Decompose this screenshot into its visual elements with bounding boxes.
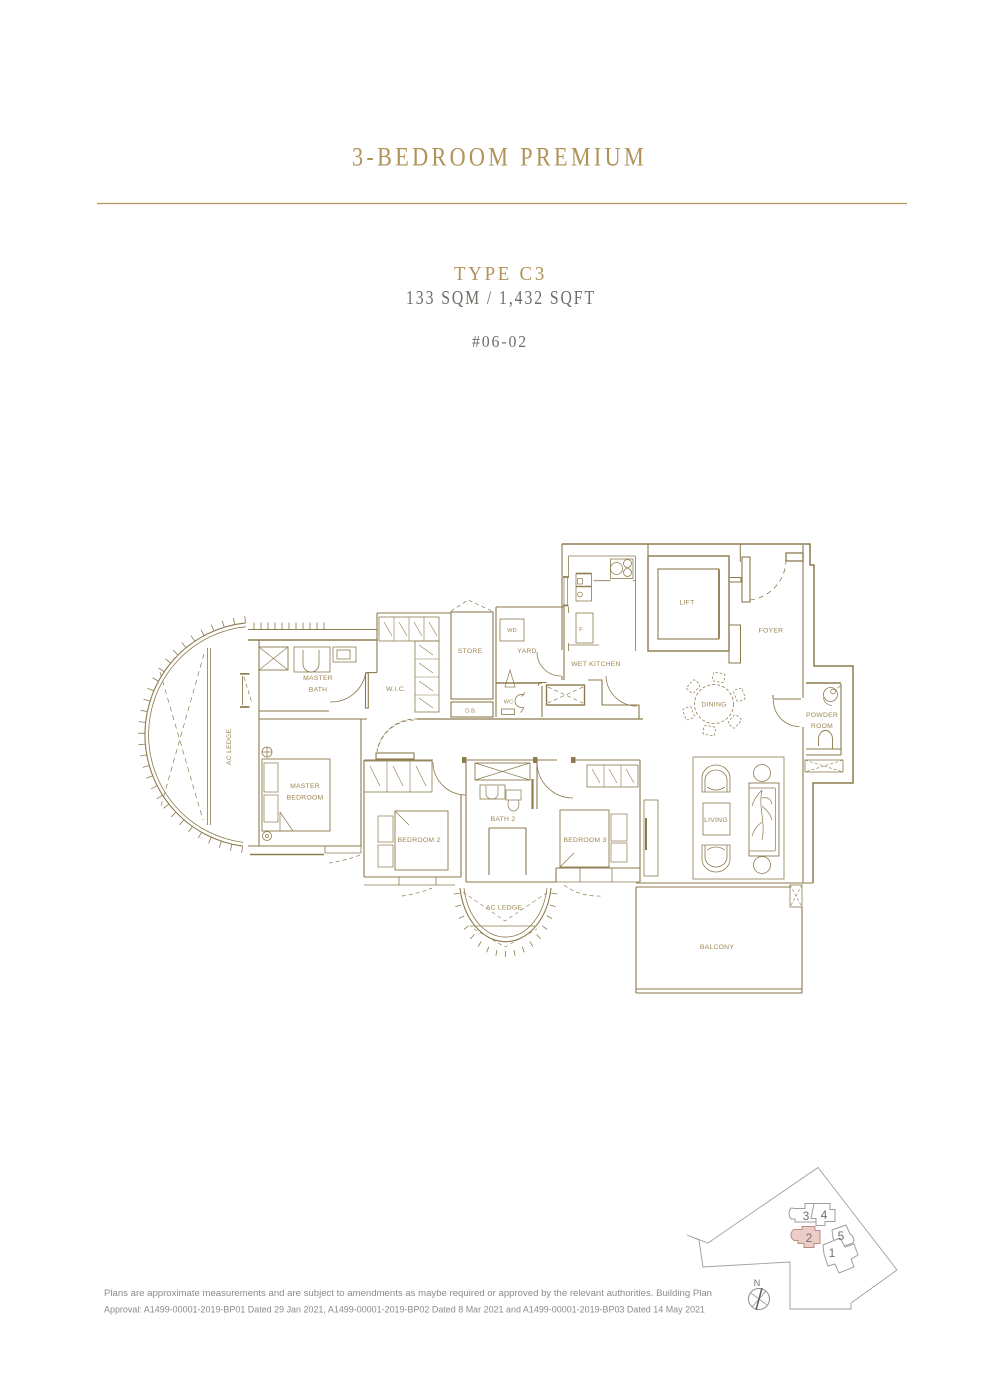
- svg-text:POWDER: POWDER: [806, 712, 838, 719]
- svg-text:5: 5: [838, 1229, 845, 1243]
- svg-text:WD: WD: [507, 628, 517, 634]
- svg-text:BEDROOM: BEDROOM: [287, 795, 324, 802]
- svg-text:Approval: A1499-00001-2019-BP0: Approval: A1499-00001-2019-BP01 Dated 29…: [104, 1305, 705, 1316]
- svg-text:2: 2: [806, 1231, 813, 1245]
- svg-text:MASTER: MASTER: [303, 675, 333, 682]
- svg-text:Plans are approximate measurem: Plans are approximate measurements and a…: [104, 1288, 712, 1299]
- svg-text:W.I.C.: W.I.C.: [386, 686, 406, 693]
- svg-text:STORE: STORE: [458, 648, 483, 655]
- svg-text:BEDROOM 3: BEDROOM 3: [563, 837, 606, 844]
- svg-text:N: N: [754, 1278, 761, 1288]
- svg-text:LIFT: LIFT: [680, 600, 695, 607]
- svg-text:133 SQM / 1,432 SQFT: 133 SQM / 1,432 SQFT: [406, 287, 596, 309]
- svg-text:AC LEDGE: AC LEDGE: [226, 728, 233, 765]
- svg-text:4: 4: [821, 1208, 828, 1222]
- svg-text:ROOM: ROOM: [811, 723, 833, 730]
- svg-text:AC LEDGE: AC LEDGE: [486, 905, 523, 912]
- svg-text:DINING: DINING: [701, 702, 726, 709]
- svg-text:TYPE C3: TYPE C3: [454, 263, 547, 285]
- svg-text:BATH: BATH: [309, 687, 328, 694]
- svg-text:#06-02: #06-02: [472, 332, 528, 351]
- svg-text:FOYER: FOYER: [759, 628, 784, 635]
- svg-text:D.B.: D.B.: [465, 709, 477, 715]
- svg-text:BATH 2: BATH 2: [491, 816, 516, 823]
- svg-text:3-BEDROOM PREMIUM: 3-BEDROOM PREMIUM: [352, 141, 647, 171]
- svg-text:BALCONY: BALCONY: [700, 944, 734, 951]
- svg-text:MASTER: MASTER: [290, 783, 320, 790]
- svg-text:LIVING: LIVING: [704, 817, 728, 824]
- svg-text:F: F: [579, 627, 583, 633]
- svg-text:BEDROOM 2: BEDROOM 2: [397, 837, 440, 844]
- svg-text:1: 1: [829, 1246, 836, 1260]
- svg-text:WC: WC: [504, 700, 514, 706]
- svg-text:3: 3: [803, 1209, 810, 1223]
- svg-text:YARD: YARD: [517, 648, 536, 655]
- svg-text:WET KITCHEN: WET KITCHEN: [571, 661, 620, 668]
